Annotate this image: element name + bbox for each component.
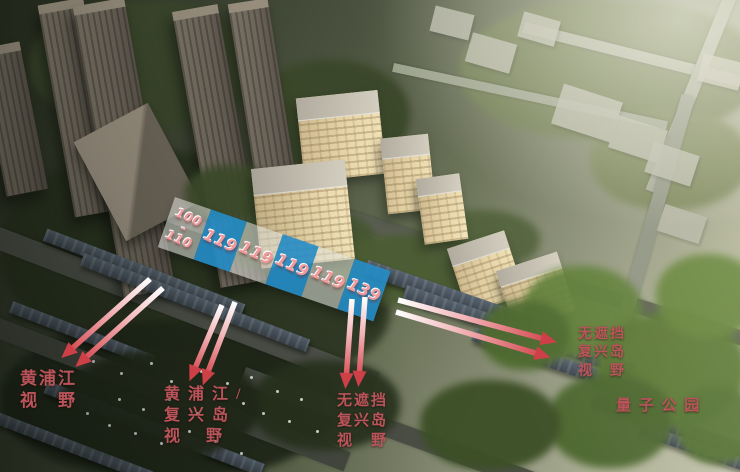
huangpu-fuxing-arrow-1 [195,305,222,367]
annotation-line: 视 野 [578,363,626,381]
annotation-line: 量 子 公 园 [616,397,701,417]
promotional-aerial-view: 100 - 110119119119119139 黄浦江视 野黄 浦 江 /复 … [0,0,740,472]
annotation-line: 复 兴 岛 [164,405,242,426]
fuxing-right-arrow-1-head [539,331,556,345]
fuxing-center-arrow-2-head [353,371,367,387]
annotation-line: 复兴岛 [337,412,388,432]
annotation-line: 黄 浦 江 / [164,384,242,405]
annotation-line: 无遮挡 [578,326,626,344]
huangpu-fuxing-arrow-2-head [202,368,215,385]
fuxing-center-arrow-2 [359,297,365,372]
fuxing-center-arrow-1 [346,299,352,374]
fuxing-right-arrow-2-head [533,346,550,359]
annotation-line: 视 野 [20,390,77,412]
annotation-line: 复兴岛 [578,344,626,362]
annotation-line: 黄浦江 [20,368,77,390]
view-fuxing-unblocked-right: 无遮挡复兴岛视 野 [578,326,626,381]
annotation-line: 无遮挡 [337,392,388,412]
annotation-line: 视 野 [337,432,388,452]
quantum-park-label: 量 子 公 园 [616,397,701,417]
annotation-line: 视 野 [164,426,242,447]
view-huangpu-fuxing-island: 黄 浦 江 /复 兴 岛视 野 [164,384,242,447]
view-fuxing-unblocked-center: 无遮挡复兴岛视 野 [337,392,388,451]
fuxing-center-arrow-1-head [340,373,354,389]
view-huangpu-river: 黄浦江视 野 [20,368,77,413]
